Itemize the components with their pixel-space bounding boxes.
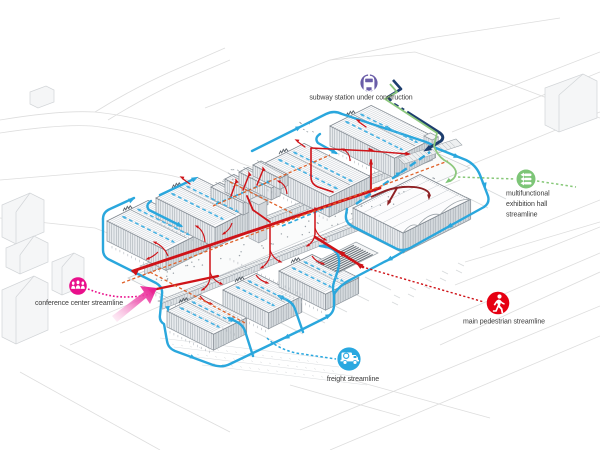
svg-text:exhibition hall: exhibition hall	[506, 201, 548, 208]
svg-text:main pedestrian streamline: main pedestrian streamline	[463, 319, 545, 326]
svg-text:multifunctional: multifunctional	[506, 191, 550, 198]
svg-text:streamline: streamline	[506, 212, 538, 219]
svg-text:conference center streamline: conference center streamline	[35, 300, 123, 307]
svg-text:subway station under construct: subway station under construction	[309, 95, 412, 102]
svg-text:freight streamline: freight streamline	[327, 376, 379, 383]
